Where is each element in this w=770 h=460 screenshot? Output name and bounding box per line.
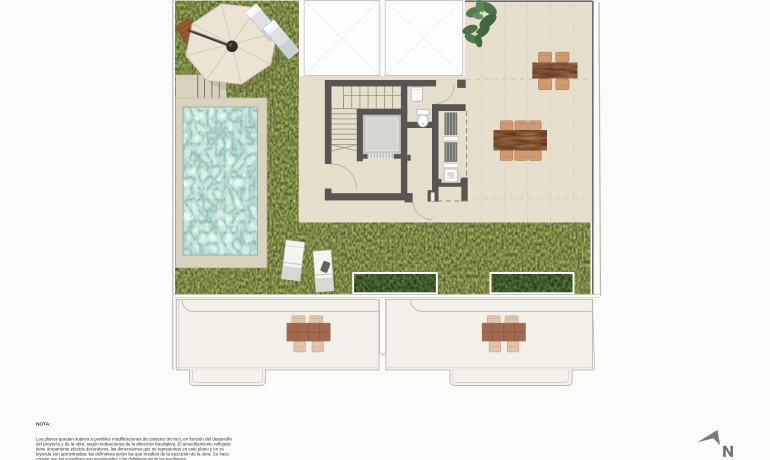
svg-text:NOTA:: NOTA: (36, 422, 51, 428)
